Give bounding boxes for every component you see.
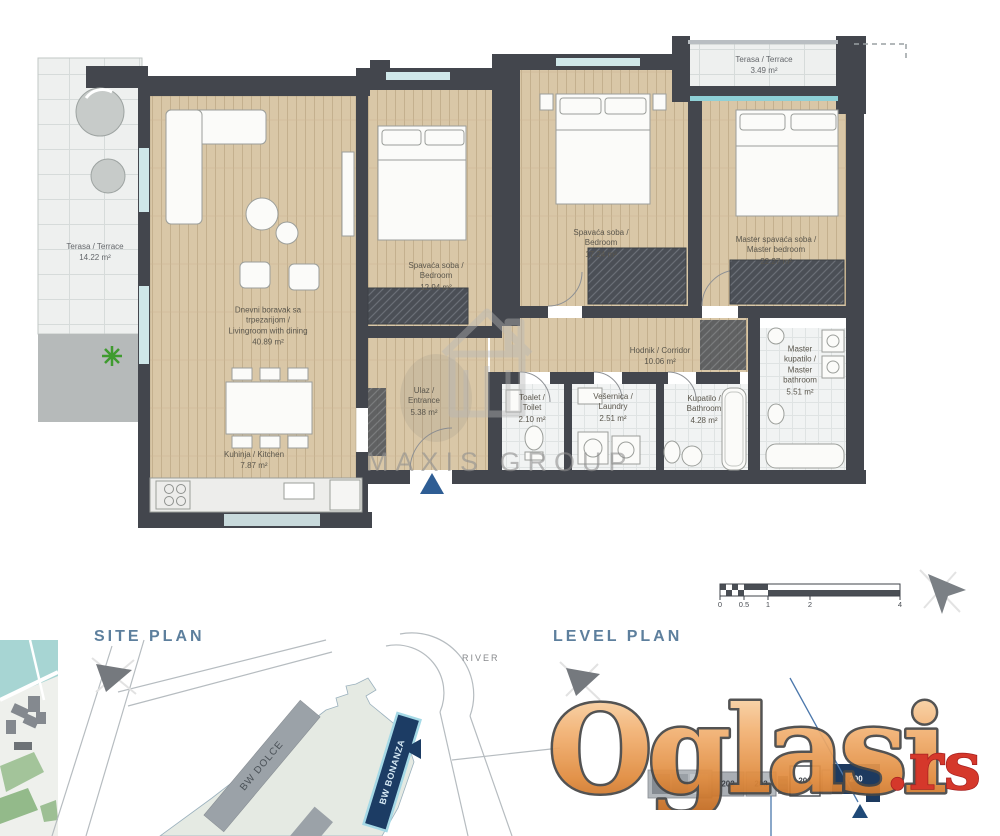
level-plan-title: LEVEL PLAN bbox=[553, 628, 682, 646]
bathtub bbox=[766, 444, 844, 468]
coffee-table bbox=[246, 198, 278, 230]
bathtub bbox=[722, 388, 746, 470]
entrance-closet bbox=[368, 388, 386, 456]
dining-table bbox=[226, 382, 312, 434]
river-label: RIVER bbox=[462, 653, 500, 663]
room-label-laundry: Vešernica / Laundry 2.51 m² bbox=[593, 392, 633, 424]
agency-watermark-text: MAXIS GROUP bbox=[366, 447, 634, 478]
fridge bbox=[330, 480, 360, 510]
scale-tick: 0.5 bbox=[739, 600, 749, 609]
room-label-master-bedroom: Master spavaća soba / Master bedroom 22.… bbox=[736, 235, 816, 267]
media-unit bbox=[342, 152, 354, 236]
armchair bbox=[240, 262, 270, 288]
wardrobe bbox=[368, 288, 468, 324]
room-label-corridor: Hodnik / Corridor 10.06 m² bbox=[630, 346, 690, 368]
room-label-bedroom-1: Spavaća soba / Bedroom 12.94 m² bbox=[408, 261, 463, 293]
location-map-fragment bbox=[0, 640, 58, 836]
plant-icon bbox=[102, 346, 122, 366]
master-bedroom-furniture bbox=[730, 110, 844, 304]
bedroom-1-furniture bbox=[368, 126, 468, 324]
scale-tick: 4 bbox=[898, 600, 902, 609]
portal-watermark: Oglasi .rs bbox=[540, 660, 1000, 810]
scale-tick: 2 bbox=[808, 600, 812, 609]
site-plan-title: SITE PLAN bbox=[94, 628, 205, 646]
corridor-closet bbox=[700, 320, 746, 370]
room-label-master-bathroom: Master kupatilo / Master bathroom 5.51 m… bbox=[783, 345, 817, 398]
site-plan-drawing bbox=[52, 633, 600, 836]
tree bbox=[91, 159, 125, 193]
room-label-bathroom: Kupatilo / Bathroom 4.28 m² bbox=[687, 394, 722, 426]
room-label-bedroom-2: Spavaća soba / Bedroom 17.24 m² bbox=[573, 228, 628, 260]
room-label-terrace-left: Terasa / Terrace 14.22 m² bbox=[66, 242, 123, 264]
room-label-toilet: Toalet / Toilet 2.10 m² bbox=[518, 393, 545, 425]
room-label-kitchen: Kuhinja / Kitchen 7.87 m² bbox=[224, 450, 284, 472]
scale-tick: 1 bbox=[766, 600, 770, 609]
room-label-entrance: Ulaz / Entrance 5.38 m² bbox=[408, 386, 440, 418]
tree bbox=[76, 88, 124, 136]
scale-tick: 0 bbox=[718, 600, 722, 609]
room-label-terrace-top: Terasa / Terrace 3.49 m² bbox=[735, 55, 792, 77]
portal-watermark-suffix: .rs bbox=[886, 727, 981, 805]
room-label-living-room: Dnevni boravak sa trpezarijom / Livingro… bbox=[228, 306, 307, 349]
listing-floor-plan-page: Terasa / Terrace 14.22 m² Dnevni boravak… bbox=[0, 0, 1000, 836]
scale-bar bbox=[720, 584, 900, 600]
north-arrow bbox=[920, 570, 966, 614]
kitchen-sink bbox=[284, 483, 314, 499]
